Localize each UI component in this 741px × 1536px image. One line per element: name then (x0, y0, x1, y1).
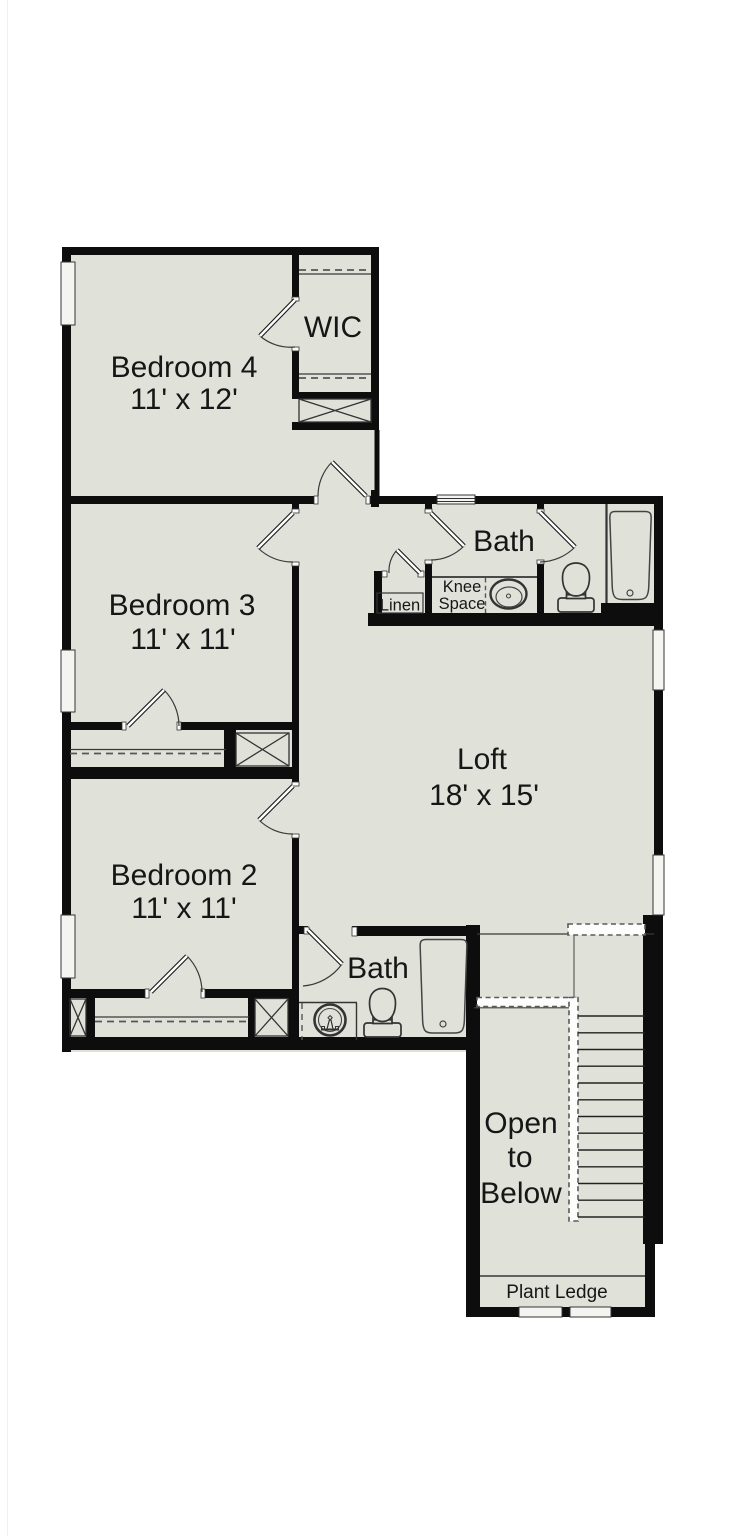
svg-text:11' x 11': 11' x 11' (131, 892, 236, 925)
svg-text:18' x 15': 18' x 15' (429, 779, 539, 812)
svg-text:Bedroom 2: Bedroom 2 (111, 859, 258, 892)
svg-text:Linen: Linen (380, 597, 420, 615)
svg-text:WIC: WIC (304, 311, 362, 344)
svg-text:to: to (507, 1141, 532, 1174)
svg-text:Knee: Knee (443, 578, 482, 596)
svg-text:Space: Space (439, 595, 486, 613)
svg-text:Bath: Bath (473, 525, 535, 558)
svg-text:Bedroom 3: Bedroom 3 (109, 589, 256, 622)
svg-text:11' x 12': 11' x 12' (130, 383, 238, 416)
svg-text:Bedroom 4: Bedroom 4 (111, 351, 258, 384)
svg-text:Loft: Loft (457, 743, 508, 776)
svg-text:Open: Open (484, 1107, 557, 1140)
svg-text:Below: Below (480, 1177, 562, 1210)
svg-text:Plant Ledge: Plant Ledge (506, 1282, 607, 1303)
svg-text:11' x 11': 11' x 11' (130, 623, 235, 656)
svg-text:Bath: Bath (347, 952, 409, 985)
